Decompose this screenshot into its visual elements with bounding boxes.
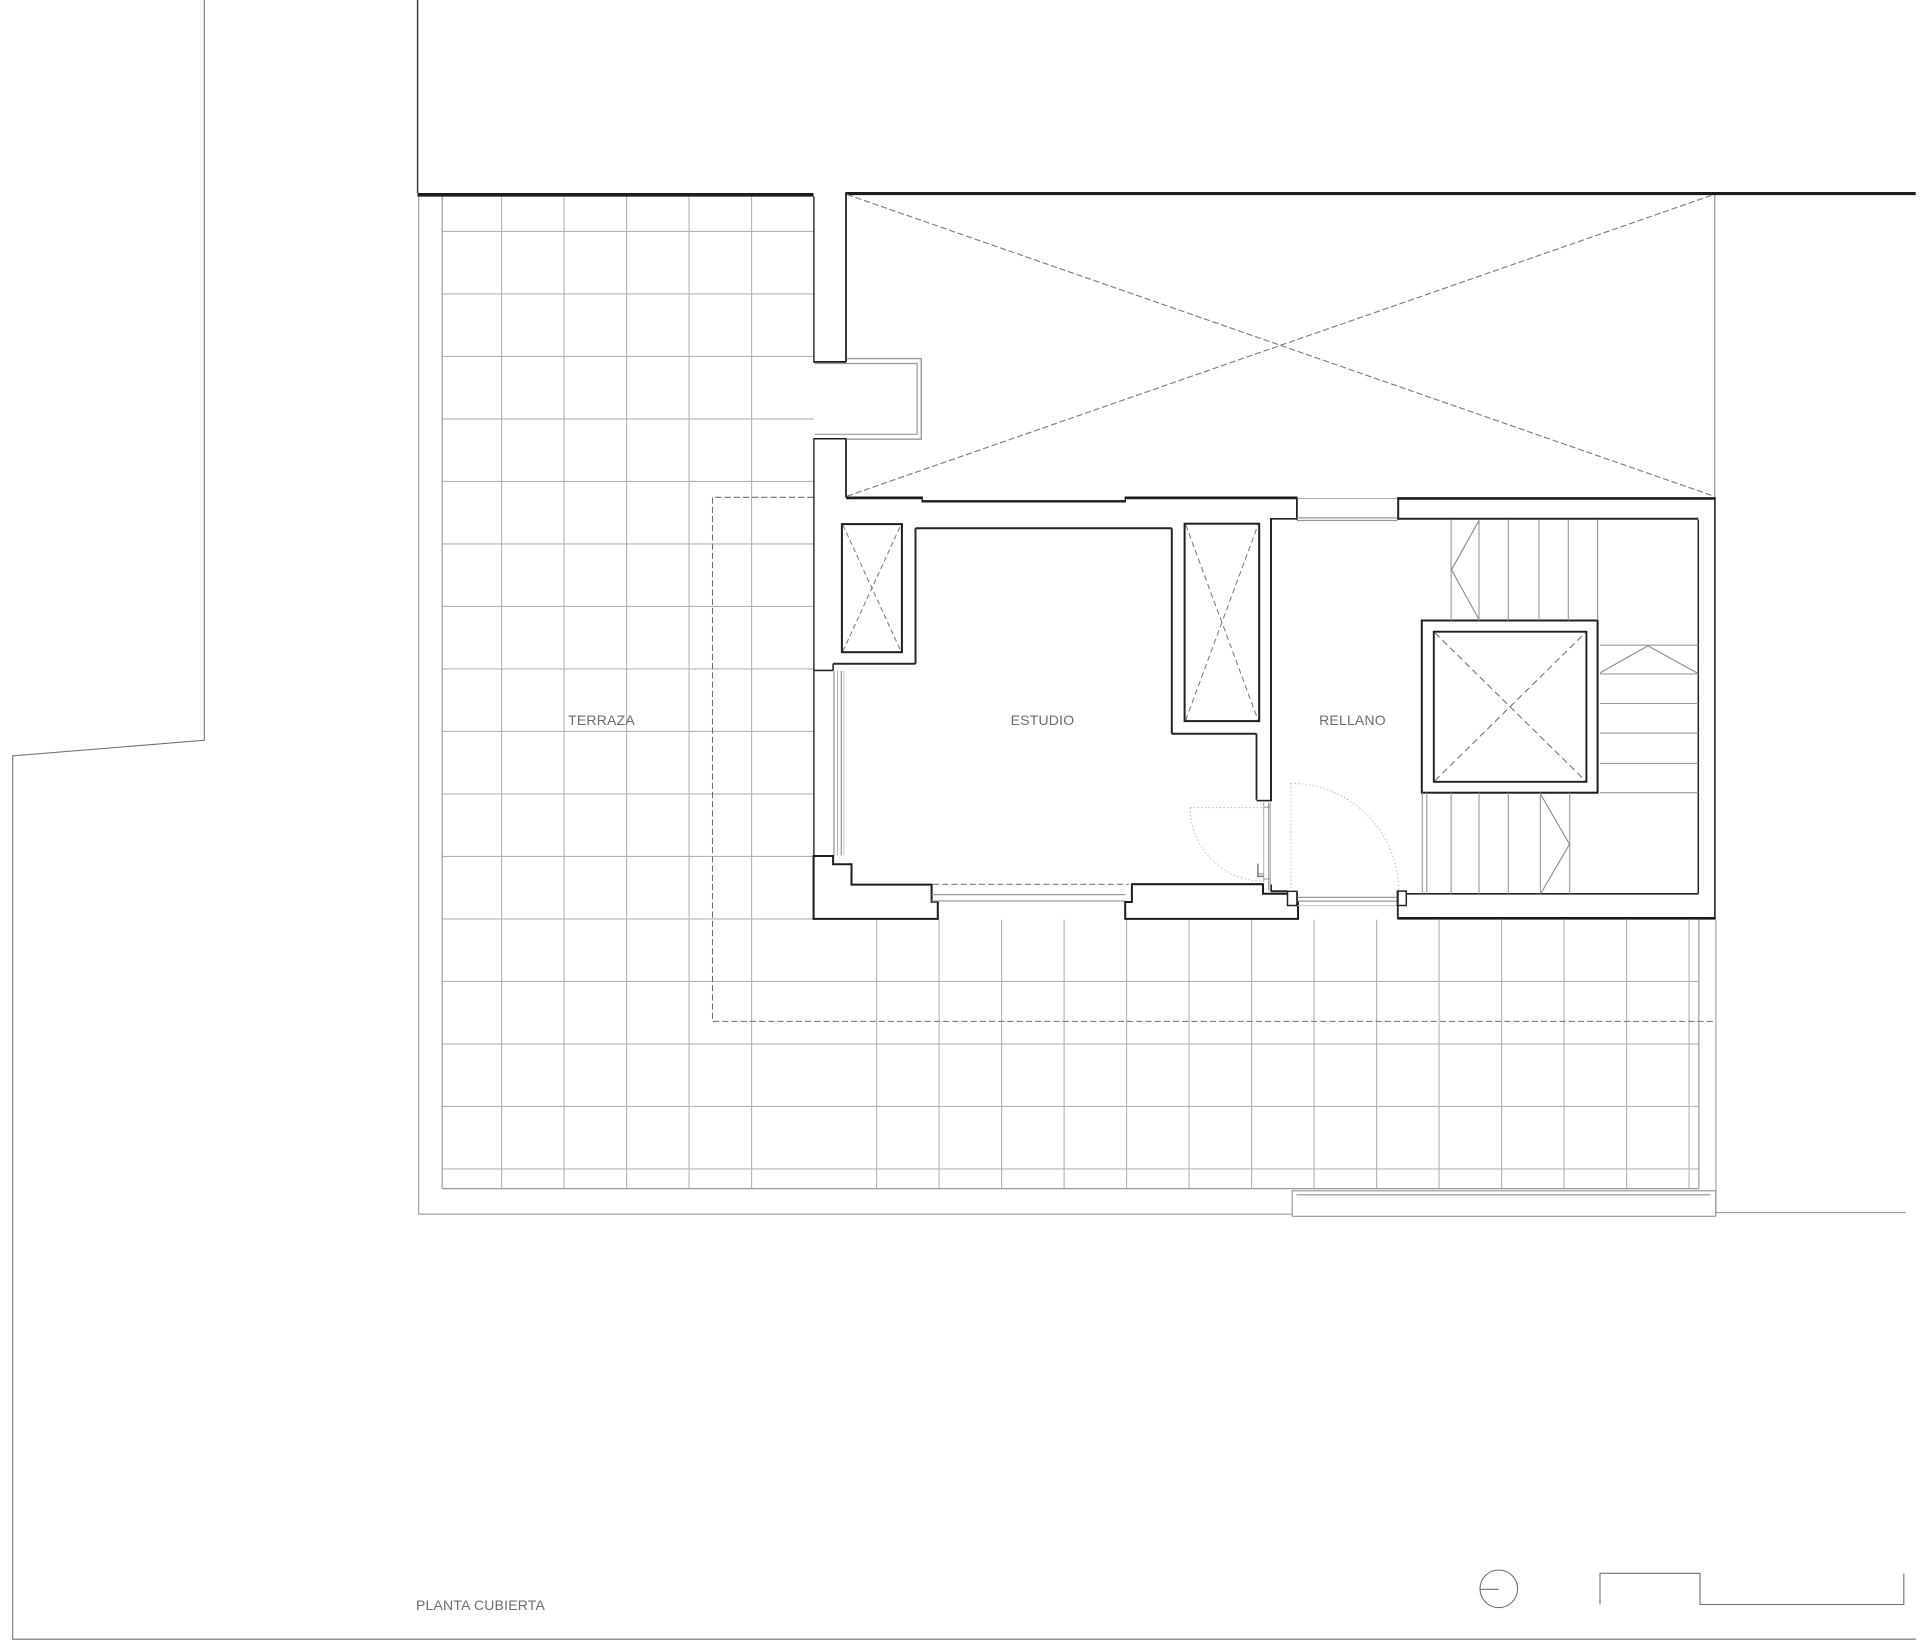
svg-text:TERRAZA: TERRAZA (568, 712, 635, 728)
svg-text:ESTUDIO: ESTUDIO (1011, 712, 1075, 728)
svg-text:RELLANO: RELLANO (1319, 712, 1386, 728)
svg-text:PLANTA CUBIERTA: PLANTA CUBIERTA (416, 1597, 545, 1613)
